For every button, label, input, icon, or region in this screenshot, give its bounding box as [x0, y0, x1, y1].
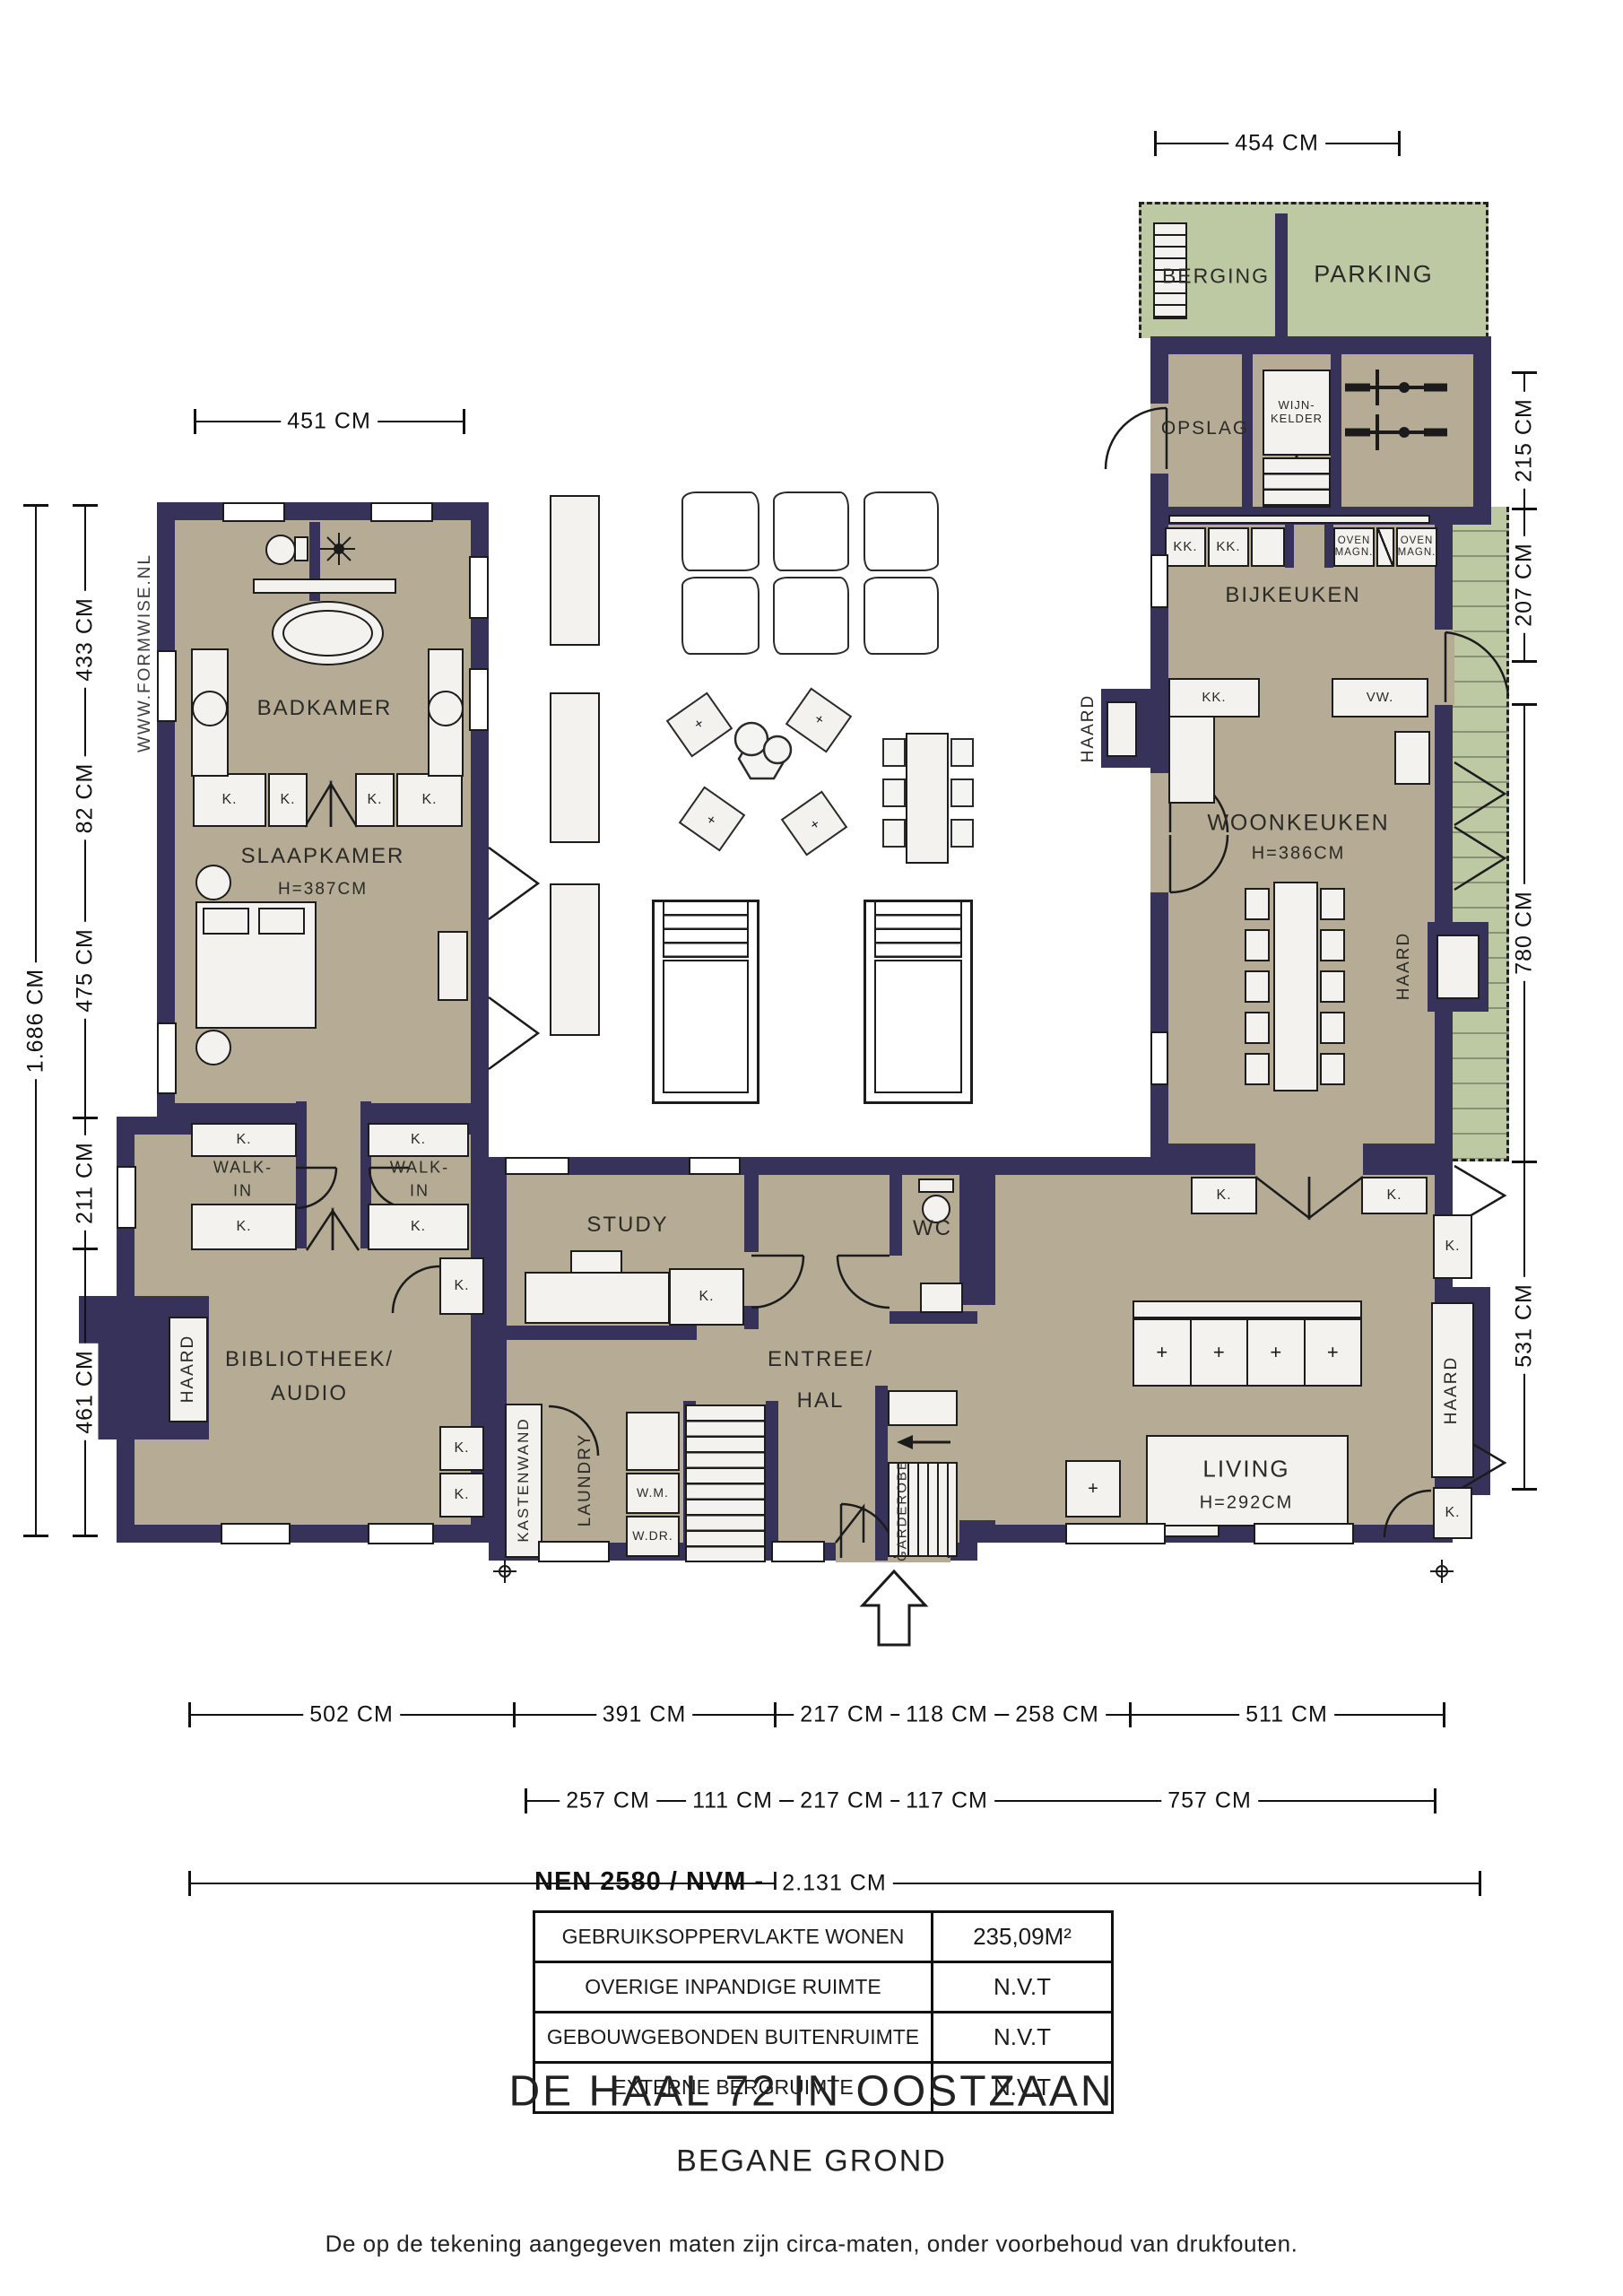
cellar-inner [663, 960, 749, 1093]
cabinet-diag [1376, 527, 1394, 567]
dimension-label: 1.686 CM [23, 961, 49, 1078]
wine-cellar-room-label: KELDER [1271, 413, 1323, 426]
cabinet-oven-label: OVEN [1401, 535, 1434, 547]
closet-k-label: K. [454, 1278, 469, 1294]
wijnkelder-right-wall [1331, 354, 1341, 507]
closet-k: K. [1361, 1177, 1428, 1214]
dining-chair [1320, 1053, 1345, 1085]
dining-chair [1320, 1012, 1345, 1044]
bathtub-inner [282, 610, 373, 657]
closet-k-label: K. [367, 792, 382, 808]
toilet-tank [294, 536, 308, 561]
cabinet-vw: VW. [1332, 678, 1428, 717]
table-cell-value: 235,09M² [933, 1912, 1113, 1962]
sink-right [428, 691, 464, 726]
table-row: OVERIGE INPANDIGE RUIMTE N.V.T [534, 1962, 1113, 2013]
closet-k: K. [439, 1426, 484, 1471]
table-cell-label: GEBRUIKSOPPERVLAKTE WONEN [534, 1912, 933, 1962]
cabinet-kk: KK. [1165, 527, 1206, 567]
dimension-label: 511 CM [1239, 1702, 1334, 1728]
window-slit [157, 1022, 177, 1094]
dimension-label: 757 CM [1161, 1788, 1258, 1814]
closet-k-label: K. [280, 792, 295, 808]
dimension-label: 433 CM [73, 591, 99, 688]
dimension-label: 475 CM [73, 922, 99, 1019]
desk [525, 1272, 670, 1324]
entrance-arrow-icon [863, 1571, 925, 1645]
disclaimer-text: De op de tekening aangegeven maten zijn … [325, 2231, 1298, 2258]
lounge-chair [679, 786, 746, 851]
kastenwand-label: KASTENWAND [515, 1417, 533, 1542]
toilet-bowl [265, 535, 296, 565]
closet-k: K. [191, 1204, 297, 1250]
planter [550, 883, 600, 1036]
outdoor-dining-chair [950, 778, 974, 807]
window-slit [221, 1523, 291, 1544]
dimension-label: 531 CM [1512, 1277, 1538, 1374]
planter [550, 495, 600, 646]
sofa-seat [1134, 1320, 1190, 1385]
garderobe-label: GARDEROBE [895, 1459, 910, 1561]
closet-k: K. [368, 1204, 469, 1250]
dimension-tick [1512, 703, 1537, 706]
room-label: HAL [797, 1388, 845, 1413]
wc-tank [918, 1178, 954, 1193]
window-slit [157, 650, 177, 722]
cabinet [1251, 527, 1285, 567]
dimension-label: 391 CM [596, 1702, 693, 1728]
closet-k-label: K. [236, 1132, 251, 1148]
dimension-tick [73, 1535, 98, 1537]
room-label: STUDY [586, 1213, 668, 1238]
bathroom-shelf [253, 578, 396, 594]
cellar-steps [663, 902, 749, 958]
laundry-label: LAUNDRY [576, 1433, 595, 1526]
dimension-label: 207 CM [1512, 536, 1538, 633]
closet-k-label: K. [1216, 1187, 1231, 1204]
kitchen-sink-unit [1394, 731, 1430, 785]
room-label: IN [410, 1182, 430, 1201]
closet-k-label: K. [421, 792, 437, 808]
dimension-tick [1443, 1702, 1445, 1727]
dimension-tick [1512, 1488, 1537, 1491]
dining-chair [1245, 1053, 1270, 1085]
room-label: WALK- [213, 1159, 273, 1178]
closet-k-label: K. [1445, 1239, 1460, 1255]
garderobe-left-wall [875, 1386, 888, 1561]
watermark-text: WWW.FORMWISE.NL [135, 553, 155, 752]
window-slit [505, 1157, 569, 1175]
dimension-tick [1512, 660, 1537, 663]
closet-k-label: K. [699, 1289, 714, 1305]
window-slit [689, 1157, 741, 1175]
room-label: BERGING [1162, 265, 1270, 289]
dimension-label: 258 CM [1009, 1702, 1106, 1728]
table-cell-value: N.V.T [933, 1962, 1113, 2013]
dimension-tick [1434, 1788, 1436, 1813]
dining-chair [1245, 1012, 1270, 1044]
courtyard-lounge [735, 723, 791, 778]
cabinet-kk: KK. [1208, 527, 1249, 567]
door-gap-study [744, 1252, 759, 1306]
sink-left [192, 691, 228, 726]
closet-k: K. [1433, 1214, 1472, 1279]
room-label: SLAAPKAMER [241, 844, 405, 869]
laundry-sink [626, 1412, 680, 1471]
washing-machine-label: W.M. [637, 1486, 669, 1500]
dimension-tick [1512, 508, 1537, 510]
room-label: WALK- [390, 1159, 449, 1178]
closet-k: K. [368, 1123, 469, 1157]
dryer: W.DR. [626, 1516, 680, 1557]
closet-k-label: K. [454, 1487, 469, 1503]
haard-label: HAARD [178, 1335, 198, 1404]
closet-k-label: K. [411, 1132, 426, 1148]
room-label: WOONKEUKEN [1207, 811, 1389, 837]
bay-window-slaapkamer-1 [489, 848, 538, 919]
hedge-icon [773, 577, 849, 655]
window-slit [1150, 554, 1168, 608]
closet-k: K. [1433, 1487, 1472, 1539]
wc-left-wall [890, 1175, 902, 1256]
door-gap-living-passage [958, 1305, 999, 1520]
table-row: GEBRUIKSOPPERVLAKTE WONEN 235,09M² [534, 1912, 1113, 1962]
cabinet-oven: OVENMAGN. [1333, 527, 1375, 567]
room-label: OPSLAG [1161, 418, 1249, 439]
nightstand [195, 865, 231, 900]
dimension-tick [1154, 131, 1157, 156]
dimension-tick [1129, 1702, 1132, 1727]
bay-window-slaapkamer-2 [489, 997, 538, 1069]
cabinet-kk-label: KK. [1173, 540, 1197, 555]
closet-k-label: K. [411, 1219, 426, 1235]
cabinet-oven-label: OVEN [1338, 535, 1371, 547]
terrace-strip [1453, 507, 1509, 1161]
dimension-tick [188, 1702, 191, 1727]
worktop [1168, 515, 1430, 524]
closet-k: K. [439, 1473, 484, 1518]
dimension-label: 454 CM [1228, 131, 1325, 157]
planter [550, 692, 600, 843]
dimension-label: 451 CM [281, 409, 378, 435]
room-label: IN [233, 1182, 253, 1201]
nightstand [195, 1030, 231, 1065]
dimension-label: 502 CM [303, 1702, 400, 1728]
dimension-label: 211 CM [73, 1135, 99, 1231]
door-gap-terrace [1433, 630, 1454, 705]
dimension-label: 217 CM [794, 1702, 890, 1728]
window-slit [771, 1541, 825, 1562]
cabinet-kk-label: KK. [1216, 540, 1240, 555]
dimension-label: 82 CM [73, 757, 99, 840]
pillow [203, 908, 249, 935]
dimension-tick [188, 1871, 191, 1896]
closet-k: K. [439, 1257, 484, 1315]
dining-chair [1245, 888, 1270, 920]
cabinet-oven: OVENMAGN. [1396, 527, 1437, 567]
closet-k-label: K. [1386, 1187, 1402, 1204]
closet-k: K. [396, 773, 463, 827]
dimension-label: 118 CM [899, 1702, 994, 1728]
window-slit [370, 502, 433, 522]
closet-k: K. [669, 1268, 744, 1326]
dimension-tick [23, 1535, 48, 1537]
firebox-woonkeuken-right [1436, 935, 1480, 999]
dimension-label: 461 CM [73, 1344, 99, 1440]
outdoor-dining-chair [882, 819, 906, 848]
cellar-stairwell [652, 900, 759, 1104]
walkin-left-wall [296, 1101, 307, 1248]
side-table-icon [735, 723, 768, 755]
room-label: H=386CM [1252, 844, 1346, 865]
hedge-icon [864, 577, 939, 655]
dining-chair [1320, 888, 1345, 920]
table-cell-label: OVERIGE INPANDIGE RUIMTE [534, 1962, 933, 2013]
cabinet-vw-label: VW. [1367, 691, 1394, 706]
lounge-chair [781, 790, 848, 856]
closet-k: K. [268, 773, 308, 827]
cabinet-kk: KK. [1168, 678, 1260, 717]
room-label: H=292CM [1200, 1493, 1294, 1514]
sofa-seat [1246, 1320, 1304, 1385]
dimension-label: 2.131 CM [776, 1871, 892, 1897]
table-cell-label: GEBOUWGEBONDEN BUITENRUIMTE [534, 2013, 933, 2063]
garderobe-xbox [888, 1390, 958, 1426]
dining-chair [1320, 970, 1345, 1003]
cellar-stairwell [864, 900, 973, 1104]
haard-label: HAARD [1394, 932, 1414, 1001]
table-cell-value: N.V.T [933, 2013, 1113, 2063]
closet-k: K. [1191, 1177, 1257, 1214]
window-slit [368, 1523, 434, 1544]
cellar-inner [874, 960, 962, 1093]
dimension-label: 780 CM [1512, 884, 1538, 981]
cellar-steps [874, 902, 962, 958]
closet-k-label: K. [221, 792, 237, 808]
outdoor-dining-chair [882, 778, 906, 807]
outdoor-dining-chair [882, 738, 906, 767]
room-label: BIJKEUKEN [1225, 583, 1360, 608]
dimension-tick [463, 409, 465, 434]
sofa-seat [1304, 1320, 1361, 1385]
closet-k-label: K. [236, 1219, 251, 1235]
window-slit [1150, 1031, 1168, 1085]
haard-label: HAARD [1079, 694, 1098, 763]
table-row: GEBOUWGEBONDEN BUITENRUIMTE N.V.T [534, 2013, 1113, 2063]
dimension-tick [774, 1702, 777, 1727]
pillow [258, 908, 305, 935]
closet-k: K. [193, 773, 266, 827]
stove [1168, 716, 1215, 804]
sofa-back [1133, 1300, 1362, 1318]
room-label: BADKAMER [257, 696, 393, 721]
door-gap-corridor [305, 1101, 360, 1137]
window-slit [222, 502, 285, 522]
dimension-label: 111 CM [686, 1788, 779, 1814]
sofa-seat [1190, 1320, 1247, 1385]
hedge-icon [864, 491, 939, 571]
hedge-icon [681, 577, 759, 655]
hedge-icon [681, 491, 759, 571]
window-slit [538, 1541, 610, 1562]
cabinet-oven-label: MAGN. [1335, 547, 1374, 559]
hexagon-table-icon [739, 739, 785, 778]
dimension-tick [73, 504, 98, 507]
dryer-label: W.DR. [632, 1529, 673, 1544]
dimension-tick [1398, 131, 1401, 156]
window-slit [1254, 1523, 1354, 1544]
room-label: PARKING [1314, 261, 1434, 289]
side-table-icon [764, 736, 791, 763]
room-label: BIBLIOTHEEK/ [225, 1347, 394, 1372]
dimension-tick [1512, 1161, 1537, 1163]
cabinet-oven-label: MAGN. [1398, 547, 1436, 559]
door-gap-wc [890, 1256, 902, 1308]
outdoor-dining-chair [950, 819, 974, 848]
hedge-icon [773, 491, 849, 571]
room-label: LIVING [1202, 1456, 1289, 1483]
lounge-chair [785, 687, 853, 752]
closet-k-label: K. [454, 1440, 469, 1457]
study-right-wall-upper [744, 1175, 759, 1252]
window-slit [117, 1166, 136, 1229]
room-label: WC [913, 1216, 952, 1241]
wine-cellar-stairs [1263, 457, 1331, 508]
dining-chair [1245, 970, 1270, 1003]
dimension-tick [194, 409, 196, 434]
dining-table [1273, 882, 1318, 1091]
washing-machine: W.M. [626, 1473, 680, 1514]
dimension-label: 257 CM [560, 1788, 656, 1814]
wc-bottom-wall [890, 1311, 977, 1324]
window-slit [1065, 1523, 1166, 1544]
dimension-tick [513, 1702, 516, 1727]
dimension-tick [1479, 1871, 1481, 1896]
dining-chair [1245, 929, 1270, 961]
door-gap-living-doors [1255, 1142, 1363, 1177]
study-right-wall-lower [744, 1306, 759, 1329]
dimension-tick [23, 504, 48, 507]
dresser [438, 931, 468, 1001]
window-slit [469, 668, 489, 731]
firebox-woonkeuken-left [1107, 701, 1137, 757]
lounge-chair [666, 691, 733, 757]
survey-marker-icon [499, 1566, 510, 1577]
room-label: ENTREE/ [768, 1347, 873, 1372]
page-title: DE HAAL 72 IN OOSTZAAN [508, 2067, 1114, 2117]
closet-k-label: K. [1445, 1505, 1460, 1521]
closet-k: K. [355, 773, 395, 827]
survey-marker-icon [1436, 1566, 1447, 1577]
garage-divider-wall [1275, 213, 1288, 338]
haard-label: HAARD [1442, 1356, 1462, 1425]
sofa [1133, 1318, 1362, 1387]
cabinet-kk-label: KK. [1202, 691, 1226, 706]
desk-chair [570, 1250, 622, 1274]
wine-cellar-room-label: WIJN- [1278, 399, 1315, 413]
staircase [685, 1405, 766, 1562]
wc-sink [920, 1283, 963, 1313]
room-label: H=387CM [278, 880, 368, 900]
stairs-right-wall [766, 1401, 778, 1561]
page-subtitle: BEGANE GROND [676, 2144, 947, 2179]
floor-plan-canvas: GEBRUIKSOPPERVLAKTE WONEN 235,09M² OVERI… [0, 0, 1623, 2296]
dimension-tick [1512, 371, 1537, 374]
closet-k: K. [191, 1123, 297, 1157]
dimension-label: 117 CM [899, 1788, 994, 1814]
dimension-tick [73, 1248, 98, 1250]
outdoor-table [906, 733, 949, 864]
dimension-label: 215 CM [1512, 392, 1538, 489]
dining-chair [1320, 929, 1345, 961]
study-bottom-wall [507, 1326, 697, 1340]
dimension-label: 217 CM [794, 1788, 890, 1814]
door-gap-woonkeuken [1150, 773, 1168, 892]
outdoor-dining-chair [950, 738, 974, 767]
armchair [1065, 1460, 1121, 1518]
wine-cellar-room: WIJN-KELDER [1263, 370, 1331, 456]
room-label: AUDIO [271, 1381, 348, 1406]
window-slit [469, 556, 489, 619]
dimension-tick [73, 1117, 98, 1119]
dimension-tick [525, 1788, 527, 1813]
